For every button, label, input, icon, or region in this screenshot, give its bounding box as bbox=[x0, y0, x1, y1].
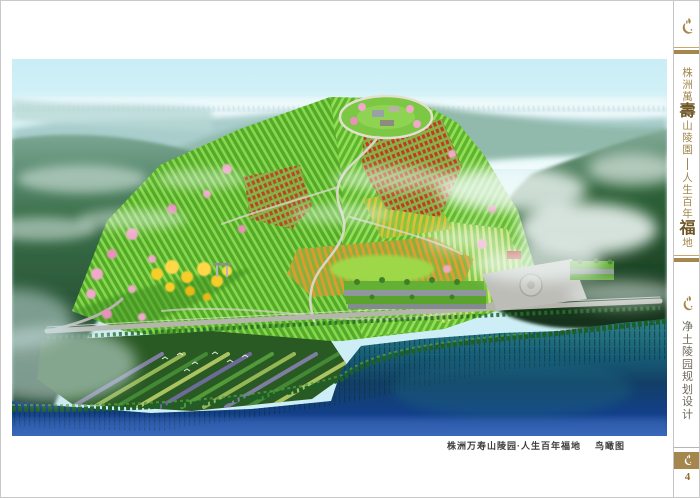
caption-title: 株洲万寿山陵园·人生百年福地 bbox=[447, 441, 581, 451]
lotus-ornament-icon bbox=[683, 454, 693, 467]
title-part: 人生百年 bbox=[682, 172, 693, 220]
page-number: 4 bbox=[674, 471, 700, 483]
title-emphasis: 福 bbox=[679, 220, 695, 237]
lotus-ornament-icon bbox=[674, 17, 700, 42]
page-number-band bbox=[674, 452, 700, 469]
sidebar: 株洲萬 壽 山陵園 人生百年 福 地 净土陵园规划设计 bbox=[673, 1, 700, 497]
divider-double-rule bbox=[674, 47, 700, 54]
summit-plaza bbox=[340, 96, 432, 138]
sidebar-title: 株洲萬 壽 山陵園 人生百年 福 地 bbox=[674, 67, 700, 249]
divider-double-rule bbox=[674, 255, 700, 262]
title-emphasis: 壽 bbox=[679, 103, 695, 120]
title-dash bbox=[687, 158, 689, 170]
lotus-ornament-icon bbox=[674, 295, 700, 318]
title-part: 株洲萬 bbox=[682, 67, 693, 103]
footer-divider bbox=[674, 447, 700, 448]
title-part: 地 bbox=[682, 237, 693, 249]
sidebar-section-label: 净土陵园规划设计 bbox=[674, 321, 700, 421]
caption-type: 鸟瞰图 bbox=[595, 441, 625, 451]
title-part: 山陵園 bbox=[682, 120, 693, 156]
image-caption: 株洲万寿山陵园·人生百年福地鸟瞰图 bbox=[447, 439, 625, 452]
aerial-view-image bbox=[12, 59, 667, 436]
album-page: 株洲万寿山陵园·人生百年福地鸟瞰图 株洲萬 壽 山陵園 人生百年 福 地 bbox=[0, 0, 700, 498]
aerial-view-scene bbox=[12, 59, 667, 436]
